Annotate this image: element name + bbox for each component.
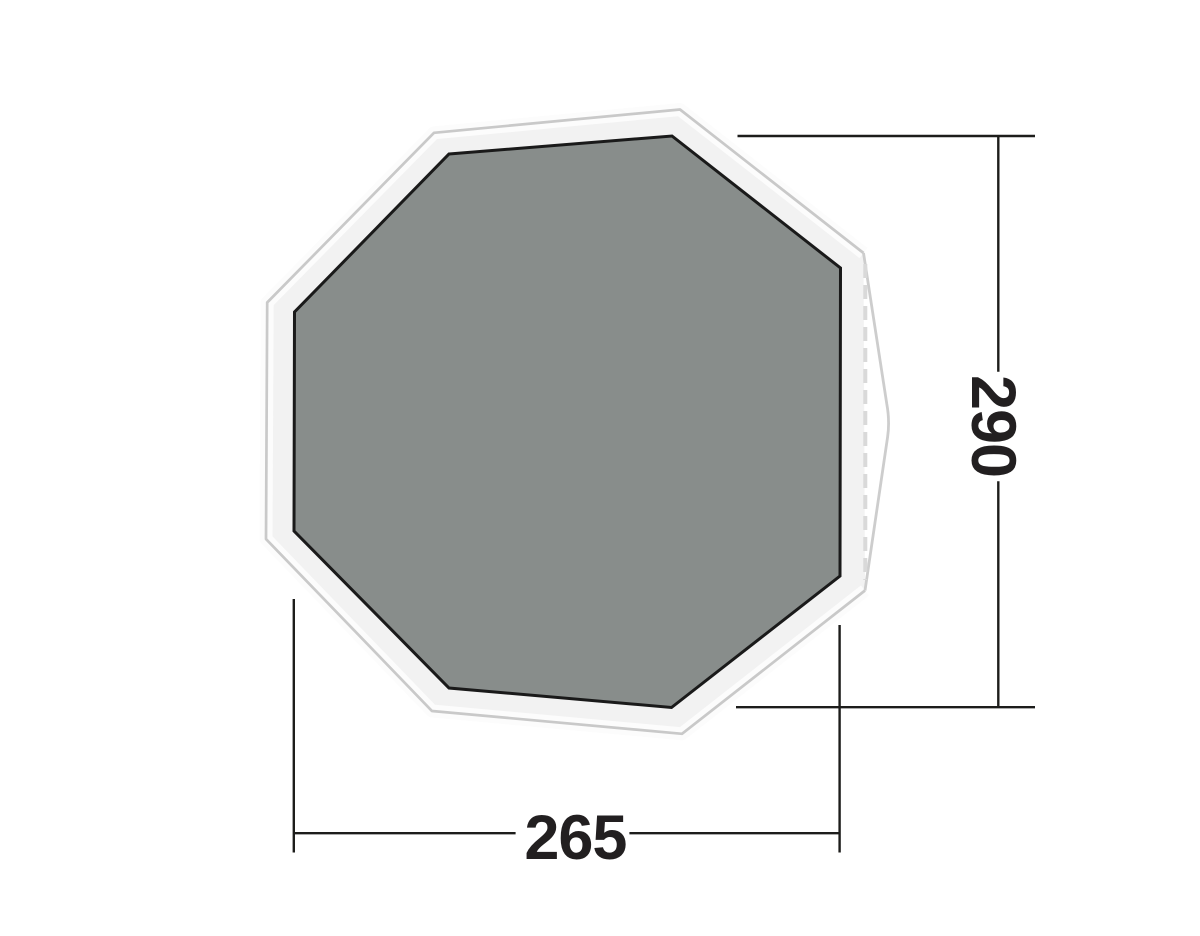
svg-text:265: 265 [524,803,626,873]
svg-text:290: 290 [958,375,1028,477]
